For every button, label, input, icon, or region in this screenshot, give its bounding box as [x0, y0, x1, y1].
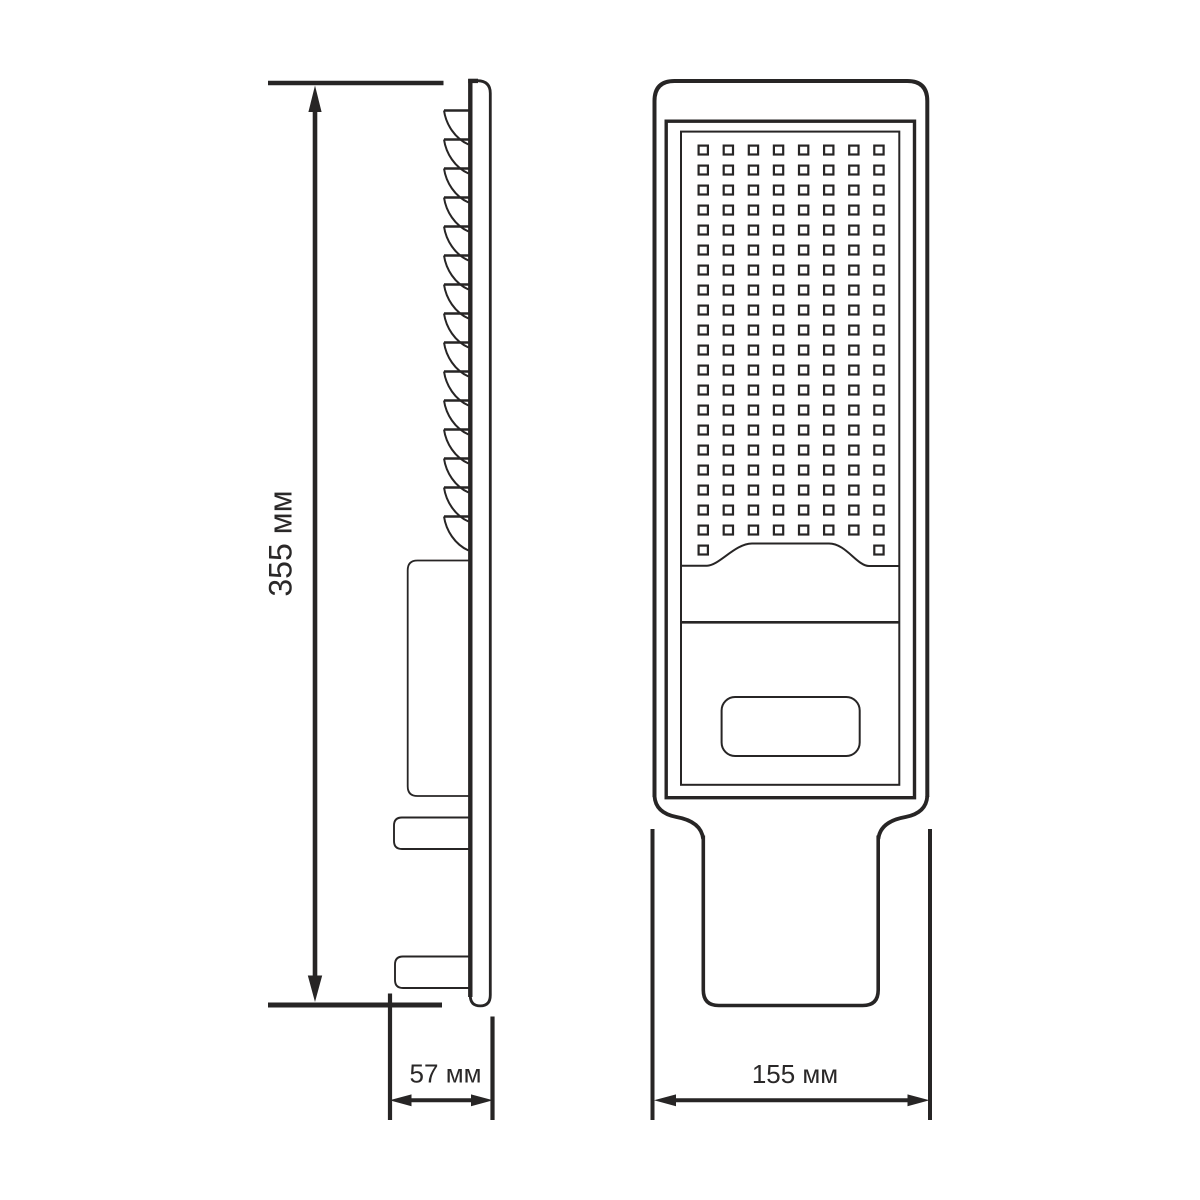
svg-text:155 мм: 155 мм [752, 1059, 838, 1089]
svg-text:355 мм: 355 мм [263, 490, 299, 596]
svg-text:57 мм: 57 мм [410, 1059, 482, 1089]
